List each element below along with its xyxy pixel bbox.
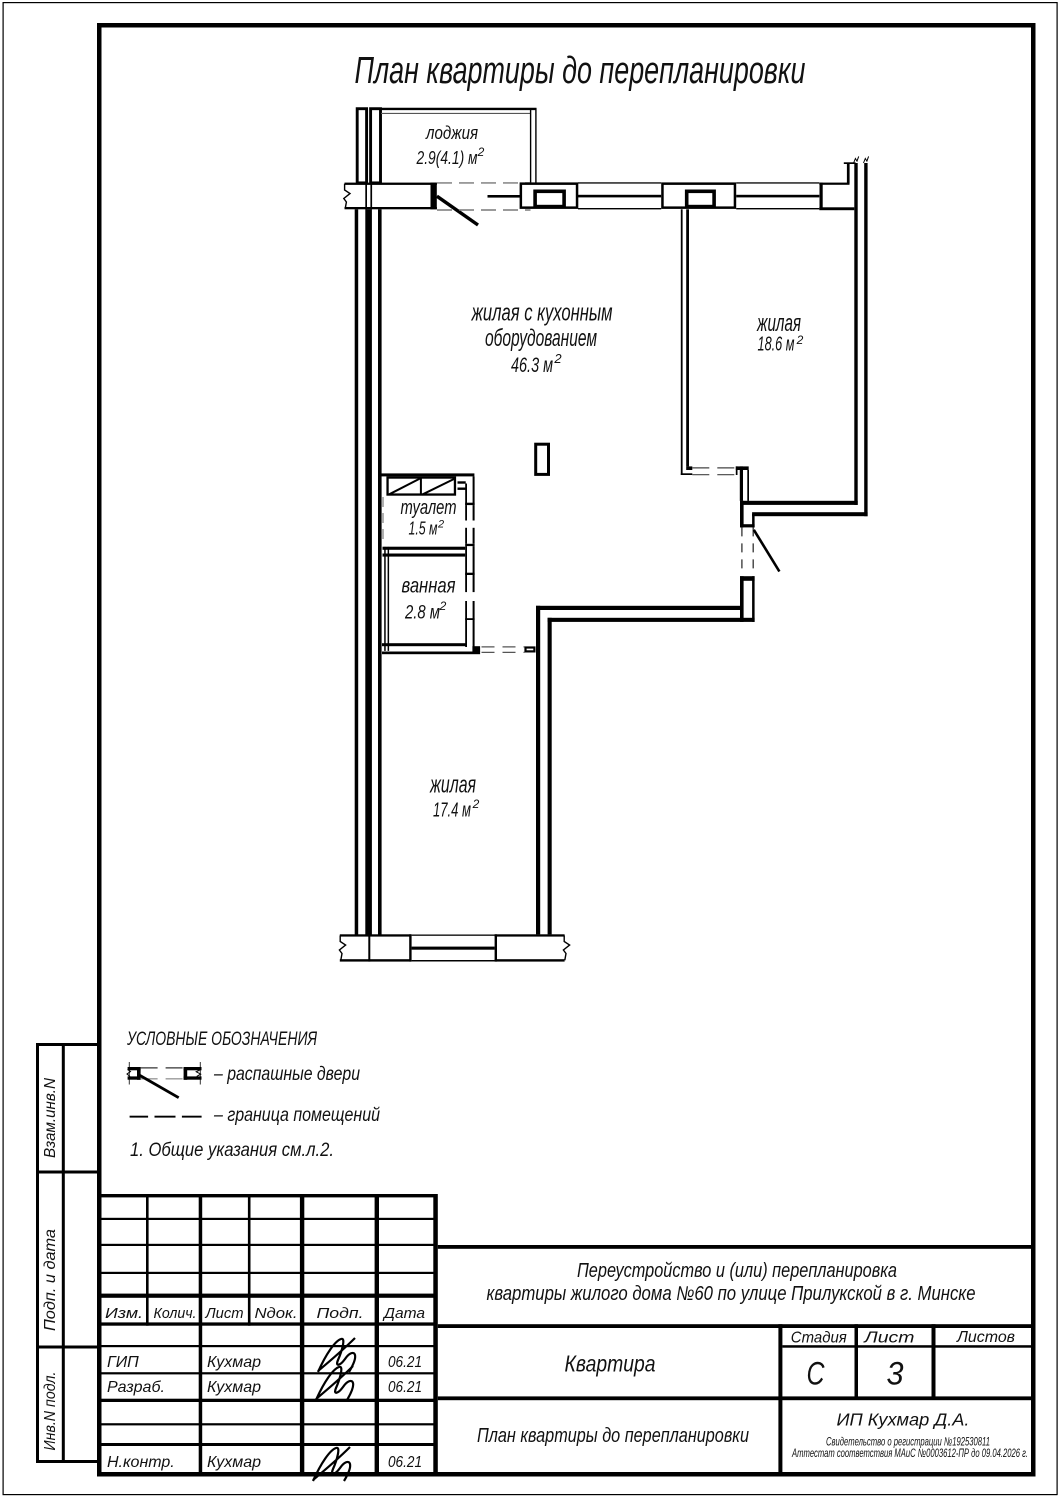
svg-text:18.6 м: 18.6 м xyxy=(758,334,795,356)
svg-text:Кухмар: Кухмар xyxy=(207,1354,261,1371)
svg-text:2: 2 xyxy=(439,599,447,613)
svg-text:46.3 м: 46.3 м xyxy=(511,354,553,377)
svg-text:Лист: Лист xyxy=(863,1330,914,1347)
svg-text:ванная: ванная xyxy=(402,574,456,597)
svg-text:Переустройство и (или) перепла: Переустройство и (или) перепланировка xyxy=(577,1260,897,1282)
svg-text:оборудованием: оборудованием xyxy=(485,325,597,352)
svg-text:Колич.: Колич. xyxy=(154,1305,197,1322)
svg-text:2: 2 xyxy=(796,333,804,347)
svg-text:ИП Кухмар Д.А.: ИП Кухмар Д.А. xyxy=(837,1410,970,1430)
svg-text:Nдок.: Nдок. xyxy=(255,1305,298,1322)
svg-text:Квартира: Квартира xyxy=(565,1351,656,1377)
svg-text:06.21: 06.21 xyxy=(388,1379,422,1396)
svg-text:2: 2 xyxy=(477,145,485,159)
svg-text:17.4 м: 17.4 м xyxy=(433,800,471,822)
svg-text:Аттестат соответствия МАиС №00: Аттестат соответствия МАиС №0003612-ПР д… xyxy=(791,1446,1028,1460)
svg-text:2: 2 xyxy=(437,519,444,531)
svg-text:Дата: Дата xyxy=(382,1305,425,1322)
svg-text:Листов: Листов xyxy=(956,1329,1015,1346)
svg-text:3: 3 xyxy=(887,1356,904,1392)
svg-text:06.21: 06.21 xyxy=(388,1454,422,1471)
svg-text:туалет: туалет xyxy=(401,497,457,519)
svg-text:1. Общие указания см.л.2.: 1. Общие указания см.л.2. xyxy=(130,1140,334,1161)
svg-text:УСЛОВНЫЕ ОБОЗНАЧЕНИЯ: УСЛОВНЫЕ ОБОЗНАЧЕНИЯ xyxy=(126,1029,317,1050)
svg-text:1.5 м: 1.5 м xyxy=(409,519,438,539)
svg-text:2.8 м: 2.8 м xyxy=(404,603,440,624)
svg-text:Подп. и дата: Подп. и дата xyxy=(42,1229,59,1331)
svg-text:– граница помещений: – граница помещений xyxy=(213,1105,380,1126)
svg-text:2: 2 xyxy=(472,797,480,811)
svg-text:Кухмар: Кухмар xyxy=(207,1379,261,1396)
svg-text:Н.контр.: Н.контр. xyxy=(107,1454,175,1471)
svg-text:лоджия: лоджия xyxy=(425,123,478,143)
svg-text:Разраб.: Разраб. xyxy=(107,1379,165,1396)
svg-text:Подп.: Подп. xyxy=(317,1305,364,1322)
svg-text:План квартиры до перепланировк: План квартиры до перепланировки xyxy=(477,1425,749,1447)
svg-text:С: С xyxy=(807,1356,826,1392)
svg-text:План квартиры до перепланировк: План квартиры до перепланировки xyxy=(355,50,806,92)
svg-text:Кухмар: Кухмар xyxy=(207,1454,261,1471)
svg-text:квартиры жилого дома №60 по ул: квартиры жилого дома №60 по улице Прилук… xyxy=(487,1283,976,1305)
svg-text:06.21: 06.21 xyxy=(388,1354,422,1371)
svg-text:Инв.N подл.: Инв.N подл. xyxy=(42,1372,59,1451)
svg-text:жилая с кухонным: жилая с кухонным xyxy=(471,300,613,327)
svg-text:Стадия: Стадия xyxy=(791,1330,847,1347)
svg-text:жилая: жилая xyxy=(429,772,476,799)
svg-text:Лист: Лист xyxy=(205,1305,244,1322)
svg-text:2.9(4.1) м: 2.9(4.1) м xyxy=(416,148,478,168)
svg-text:2: 2 xyxy=(553,351,562,366)
svg-text:Взам.инв.N: Взам.инв.N xyxy=(42,1077,59,1158)
svg-text:– распашные двери: – распашные двери xyxy=(213,1064,360,1085)
svg-text:ГИП: ГИП xyxy=(107,1354,139,1371)
svg-text:Изм.: Изм. xyxy=(105,1305,143,1322)
